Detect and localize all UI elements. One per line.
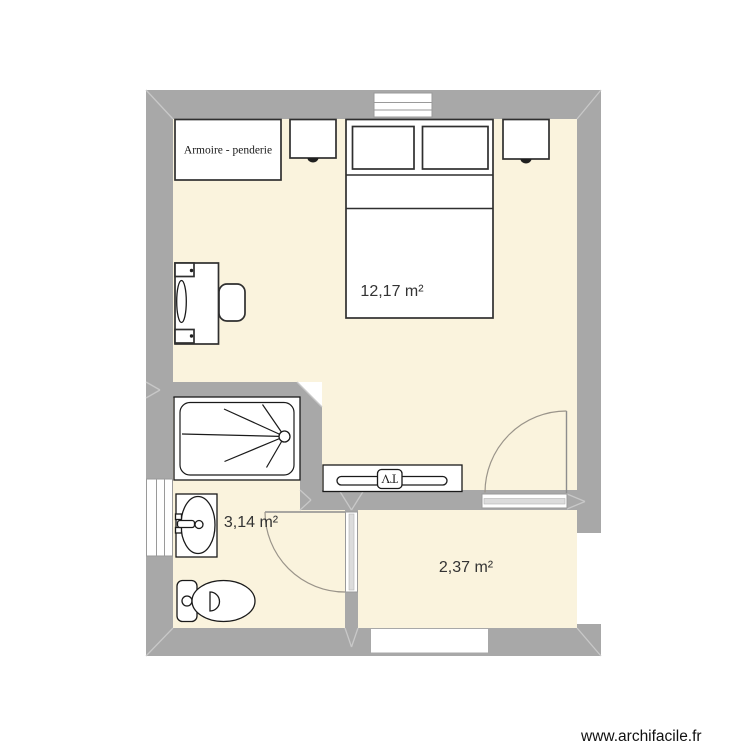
- toilet[interactable]: [177, 581, 255, 622]
- sink[interactable]: [176, 494, 218, 557]
- bedroom-area-label: 12,17 m²: [360, 283, 424, 300]
- shower-head: [279, 431, 290, 442]
- pillow-right: [423, 127, 489, 170]
- tv-label: TV: [381, 472, 398, 486]
- archifacile-watermark: www.archifacile.fr: [580, 728, 702, 745]
- right-wall-opening[interactable]: [577, 533, 601, 624]
- desk-chair[interactable]: [219, 284, 245, 321]
- top-window[interactable]: [374, 93, 432, 117]
- wardrobe[interactable]: Armoire - penderie: [175, 120, 281, 181]
- nightstand-left[interactable]: [290, 120, 336, 163]
- bottom-wall-opening[interactable]: [371, 629, 488, 653]
- nightstand-right[interactable]: [503, 120, 549, 164]
- desk[interactable]: [175, 263, 219, 344]
- floor-plan: Armoire - penderie: [0, 0, 750, 750]
- entry-room-area-label: 2,37 m²: [439, 559, 494, 576]
- shower[interactable]: [174, 397, 300, 480]
- floor-plan-canvas: Armoire - penderie: [0, 0, 750, 750]
- wardrobe-label: Armoire - penderie: [184, 145, 272, 157]
- bathroom-area-label: 3,14 m²: [224, 514, 279, 531]
- desk-lamp: [177, 281, 187, 323]
- left-window[interactable]: [147, 479, 173, 556]
- tv-cabinet[interactable]: TV: [323, 465, 462, 492]
- pillow-left: [353, 127, 415, 170]
- sink-faucet: [178, 521, 195, 528]
